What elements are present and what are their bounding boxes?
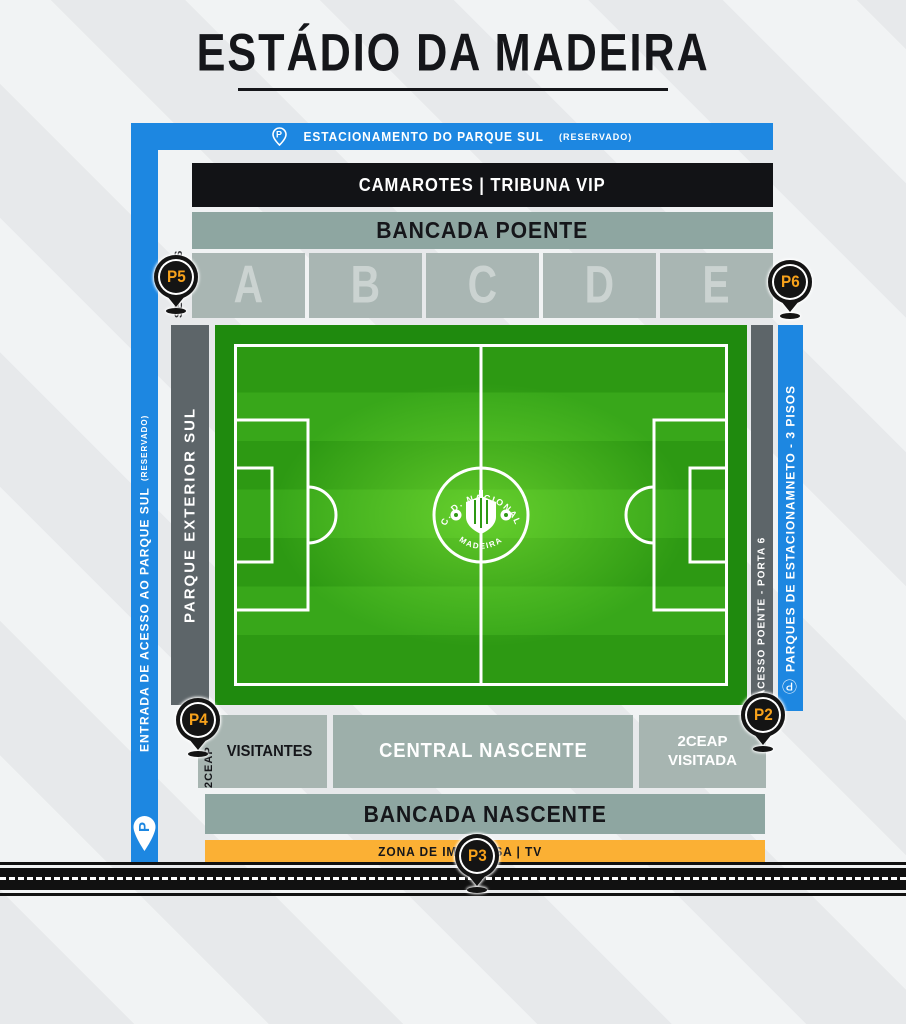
camarotes-label: CAMAROTES | TRIBUNA VIP (359, 175, 606, 196)
acesso-poente-label: ACESSO POENTE - PORTA 6 (757, 537, 768, 697)
pin-p5-tail (167, 296, 185, 307)
pin-p6-tail (781, 301, 799, 312)
pitch-lines: C. D. NACIONAL MADEIRA (234, 344, 728, 686)
pin-p3-shadow (467, 887, 487, 893)
parking-pin-p2[interactable]: P2 (740, 693, 786, 752)
pin-p4-circle: P4 (176, 698, 220, 742)
road (0, 862, 906, 896)
bancada-nascente: BANCADA NASCENTE (205, 794, 765, 834)
pin-p2-label: P2 (754, 705, 773, 725)
parque-exterior-sul-label: PARQUE EXTERIOR SUL (182, 407, 199, 623)
sector-a[interactable]: A (192, 253, 305, 318)
pin-p3-label: P3 (468, 846, 487, 866)
pin-p5-label: P5 (167, 267, 186, 287)
svg-text:P: P (136, 822, 153, 832)
entrada-acesso-note: (RESERVADO) (140, 415, 149, 481)
pin-p4-shadow (188, 751, 208, 757)
stadium-map: ESTÁDIO DA MADEIRA P ESTACIONAMENTO DO P… (0, 0, 906, 1024)
parking-south-label: ESTACIONAMENTO DO PARQUE SUL (303, 129, 543, 144)
visitada-line1: 2CEAP (677, 733, 727, 752)
parking-south-bar: P ESTACIONAMENTO DO PARQUE SUL (RESERVAD… (131, 123, 773, 150)
camarotes-bar: CAMAROTES | TRIBUNA VIP (192, 163, 773, 207)
parques-estacionamento-label: PARQUES DE ESTACIONAMNETO - 3 PISOS (784, 385, 798, 672)
parking-south-note: (RESERVADO) (559, 132, 632, 142)
parking-pin-p3[interactable]: P3 (454, 834, 500, 893)
page-header: ESTÁDIO DA MADEIRA (0, 22, 906, 91)
pin-p4-label: P4 (189, 710, 208, 730)
entrada-acesso-bar: ENTRADA DE ACESSO AO PARQUE SUL (RESERVA… (131, 123, 158, 862)
parking-pin-p5[interactable]: P5 (153, 255, 199, 314)
pin-p2-shadow (753, 746, 773, 752)
sector-e[interactable]: E (660, 253, 773, 318)
visitantes-label: VISITANTES (227, 743, 313, 761)
circled-p-icon: Ⓟ (780, 678, 801, 694)
sector-d[interactable]: D (543, 253, 656, 318)
pin-p6-shadow (780, 313, 800, 319)
parque-exterior-sul-bar: PARQUE EXTERIOR SUL (171, 325, 209, 705)
pin-p3-tail (468, 875, 486, 886)
bancada-poente: BANCADA POENTE (192, 212, 773, 249)
pin-p2-tail (754, 734, 772, 745)
acesso-poente-bar: ACESSO POENTE - PORTA 6 (751, 325, 773, 705)
pin-p4-tail (189, 739, 207, 750)
pin-p5-circle: P5 (154, 255, 198, 299)
pin-p5-shadow (166, 308, 186, 314)
svg-text:P: P (276, 130, 283, 140)
sectors-row: A B C D E (192, 253, 773, 318)
central-nascente-label: CENTRAL NASCENTE (379, 740, 588, 763)
pitch-playing-area: C. D. NACIONAL MADEIRA (234, 344, 728, 686)
page-title: ESTÁDIO DA MADEIRA (197, 22, 710, 83)
road-edge-bottom (0, 893, 906, 896)
parking-pin-icon: P (272, 127, 287, 146)
bancada-poente-label: BANCADA POENTE (377, 217, 589, 244)
entrada-acesso-label: ENTRADA DE ACESSO AO PARQUE SUL (138, 487, 152, 752)
football-pitch: C. D. NACIONAL MADEIRA (215, 325, 747, 705)
sector-c[interactable]: C (426, 253, 539, 318)
bancada-nascente-label: BANCADA NASCENTE (363, 801, 606, 828)
parking-pin-p6[interactable]: P6 (767, 260, 813, 319)
parques-estacionamento-bar: Ⓟ PARQUES DE ESTACIONAMNETO - 3 PISOS (778, 325, 803, 711)
sector-b[interactable]: B (309, 253, 422, 318)
parking-pin-p4[interactable]: P4 (175, 698, 221, 757)
visitada-line2: VISITADA (668, 752, 737, 771)
title-underline (238, 88, 668, 91)
parking-pin-icon: P (131, 814, 158, 854)
pin-p6-label: P6 (781, 272, 800, 292)
pin-p2-circle: P2 (741, 693, 785, 737)
central-nascente-block[interactable]: CENTRAL NASCENTE (333, 715, 633, 788)
pin-p3-circle: P3 (455, 834, 499, 878)
road-edge-top (0, 862, 906, 865)
pin-p6-circle: P6 (768, 260, 812, 304)
road-lane (0, 868, 906, 890)
